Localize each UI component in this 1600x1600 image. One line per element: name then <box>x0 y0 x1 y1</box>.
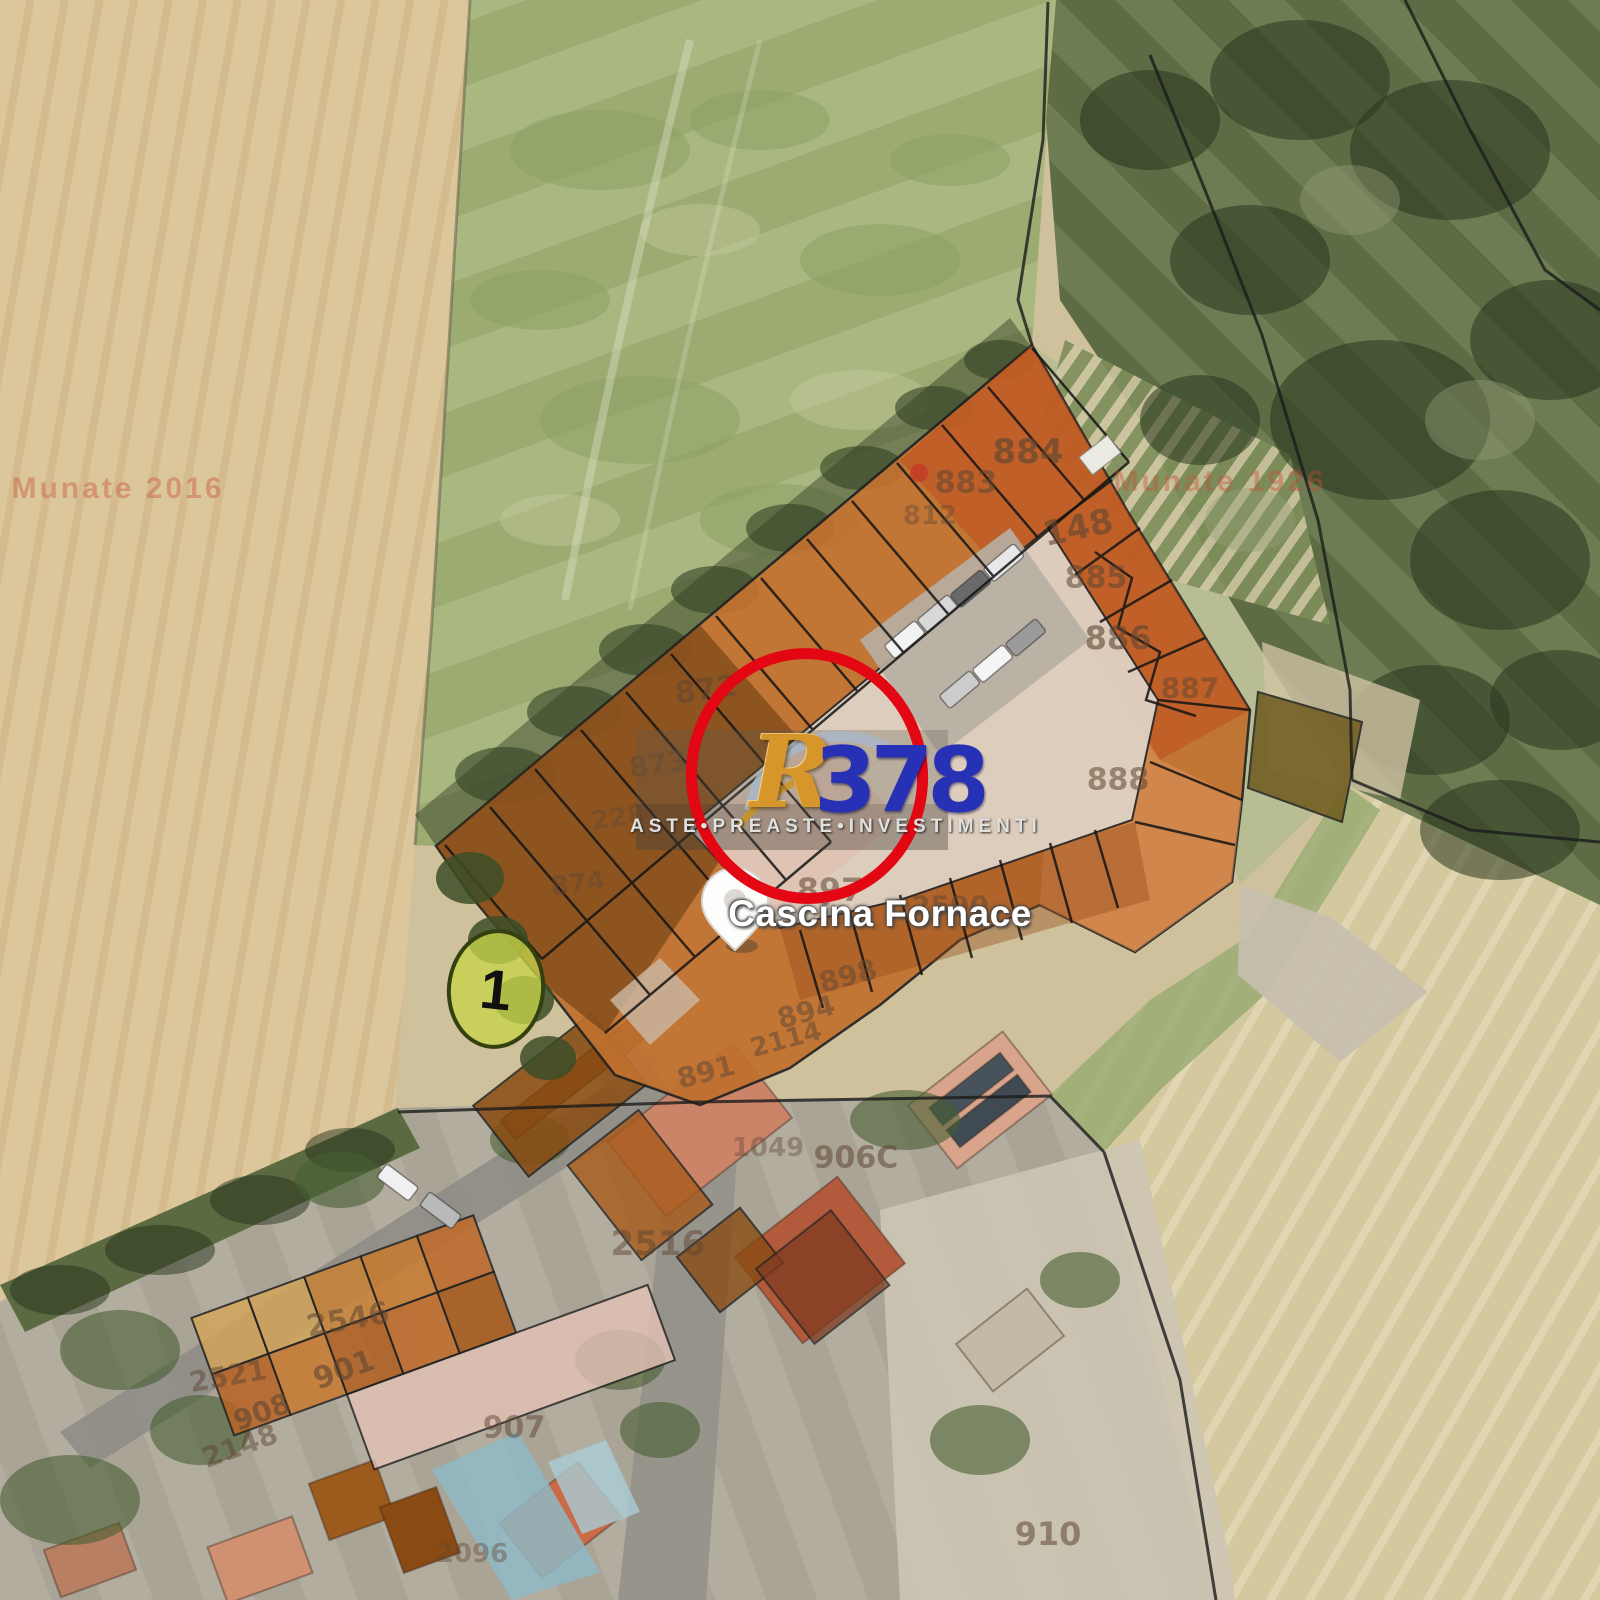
yard-right <box>880 1140 1235 1600</box>
lot-marker-number: 1 <box>477 955 515 1023</box>
gravel-area <box>1238 885 1428 1062</box>
satellite-map-image: 8848838121488858868878888728732288748972… <box>0 0 1600 1600</box>
red-seal-dot <box>910 464 928 482</box>
logo-digits: 378 <box>814 736 984 826</box>
agency-watermark: R 378 ASTE•PREASTE•INVESTIMENTI <box>630 630 960 900</box>
field-fence-line <box>415 0 470 845</box>
logo-tagline: ASTE•PREASTE•INVESTIMENTI <box>630 816 960 838</box>
